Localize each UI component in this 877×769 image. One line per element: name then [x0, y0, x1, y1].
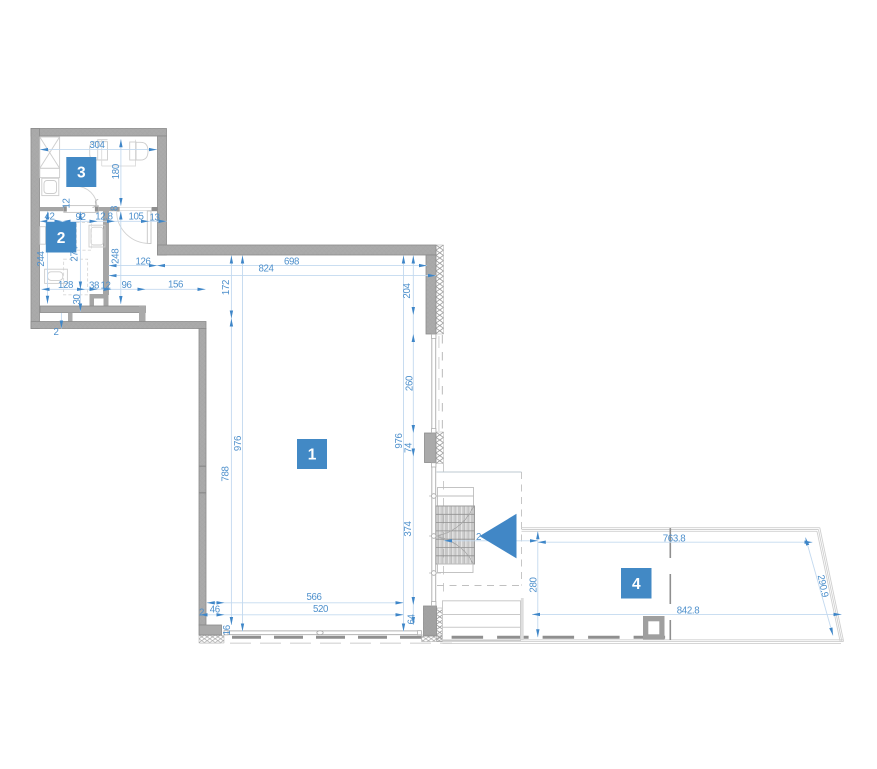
- svg-text:260: 260: [405, 375, 416, 391]
- svg-text:12: 12: [62, 198, 73, 208]
- svg-text:763.8: 763.8: [663, 533, 686, 544]
- svg-text:2: 2: [57, 230, 66, 247]
- svg-text:2: 2: [54, 327, 59, 338]
- svg-text:105: 105: [128, 211, 143, 222]
- svg-text:374: 374: [403, 520, 414, 536]
- svg-text:126: 126: [135, 256, 150, 267]
- svg-text:204: 204: [402, 282, 413, 298]
- svg-text:824: 824: [258, 264, 274, 275]
- svg-text:248: 248: [110, 249, 121, 264]
- svg-text:128: 128: [58, 280, 73, 291]
- svg-text:42: 42: [44, 211, 54, 222]
- svg-text:520: 520: [313, 604, 329, 615]
- svg-text:74: 74: [403, 442, 414, 453]
- svg-text:304: 304: [89, 140, 105, 151]
- svg-text:96: 96: [121, 280, 131, 291]
- svg-text:3: 3: [77, 165, 86, 182]
- svg-text:788: 788: [220, 466, 231, 481]
- svg-text:1: 1: [308, 447, 317, 464]
- svg-text:244: 244: [36, 250, 47, 266]
- svg-text:172: 172: [221, 280, 232, 295]
- svg-text:13: 13: [149, 212, 159, 223]
- svg-text:30: 30: [72, 294, 83, 305]
- svg-text:46: 46: [210, 605, 220, 616]
- svg-text:2: 2: [199, 608, 204, 619]
- svg-text:4: 4: [632, 576, 641, 593]
- svg-text:2: 2: [476, 532, 481, 543]
- svg-text:16: 16: [222, 625, 233, 635]
- svg-text:64: 64: [406, 614, 417, 625]
- svg-text:156: 156: [168, 280, 183, 291]
- svg-text:842.8: 842.8: [677, 605, 700, 616]
- svg-text:12.8: 12.8: [95, 211, 112, 222]
- svg-text:698: 698: [284, 256, 299, 267]
- svg-text:8: 8: [109, 206, 120, 211]
- svg-text:566: 566: [306, 592, 321, 603]
- svg-text:38: 38: [89, 280, 99, 291]
- svg-text:180: 180: [111, 163, 122, 179]
- svg-text:976: 976: [233, 436, 244, 451]
- svg-text:280: 280: [528, 576, 539, 592]
- svg-text:12: 12: [100, 280, 110, 291]
